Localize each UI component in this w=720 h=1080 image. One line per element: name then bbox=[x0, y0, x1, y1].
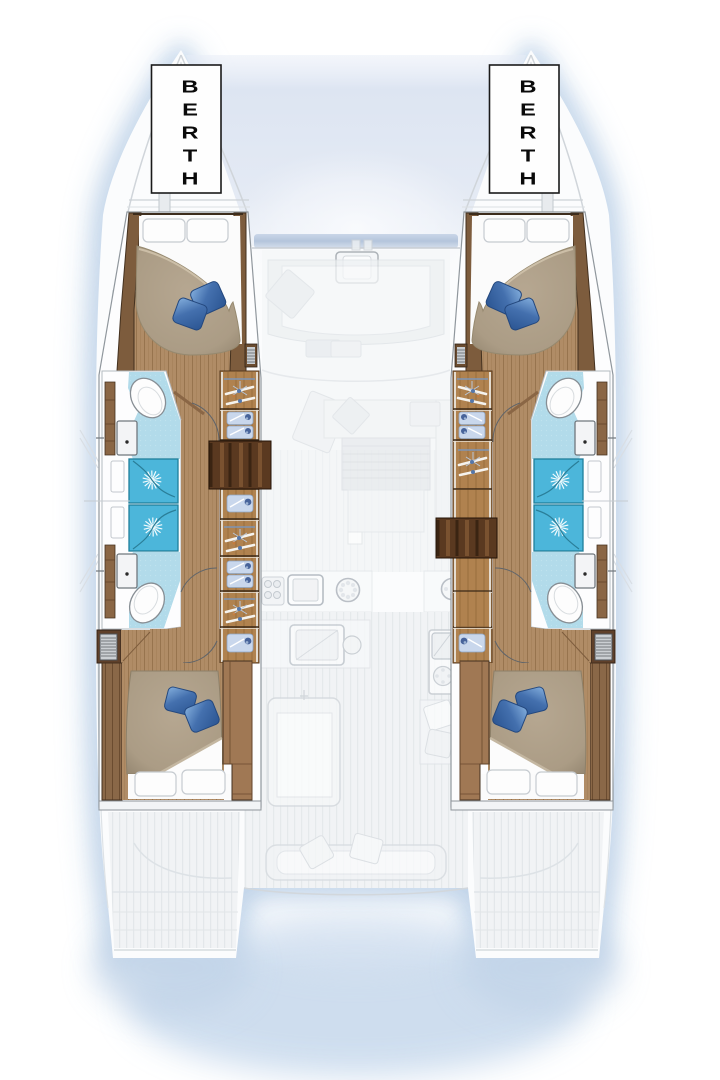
svg-text:E: E bbox=[520, 100, 536, 120]
svg-text:H: H bbox=[181, 169, 198, 189]
svg-text:B: B bbox=[181, 77, 198, 97]
svg-text:R: R bbox=[181, 123, 198, 143]
svg-text:H: H bbox=[519, 169, 536, 189]
svg-text:R: R bbox=[519, 123, 536, 143]
svg-text:B: B bbox=[519, 77, 536, 97]
svg-text:T: T bbox=[183, 146, 198, 166]
svg-text:E: E bbox=[182, 100, 198, 120]
svg-text:T: T bbox=[521, 146, 536, 166]
